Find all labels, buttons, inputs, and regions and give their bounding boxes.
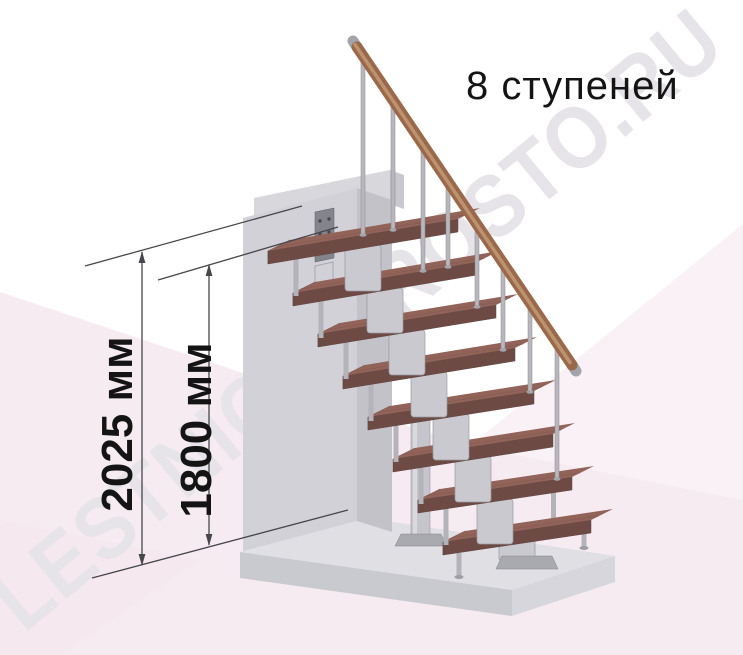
steps-count-label: 8 ступеней bbox=[466, 64, 679, 108]
baluster bbox=[361, 56, 365, 235]
baluster-foot bbox=[420, 269, 427, 273]
staircase-diagram: LESTNICA-PROSTO.RU bbox=[0, 0, 743, 655]
rear-post bbox=[419, 466, 424, 504]
plate-hole bbox=[327, 217, 330, 220]
column-highlight bbox=[413, 420, 417, 538]
baluster-foot bbox=[360, 233, 367, 237]
baluster bbox=[555, 343, 559, 479]
column-base-plate bbox=[496, 556, 558, 569]
module bbox=[345, 245, 381, 291]
leg bbox=[551, 492, 556, 522]
column-base-plate bbox=[395, 534, 447, 546]
baluster-foot bbox=[474, 305, 481, 309]
baluster-foot bbox=[445, 265, 452, 269]
plate-hole bbox=[327, 230, 330, 233]
rear-post bbox=[369, 383, 374, 421]
leg-foot bbox=[455, 575, 464, 579]
baluster bbox=[421, 145, 425, 271]
module bbox=[367, 288, 403, 333]
plate-hole bbox=[318, 219, 321, 222]
module bbox=[455, 456, 491, 502]
baluster-foot bbox=[500, 348, 507, 352]
dimension-label-2025: 2025 мм bbox=[93, 336, 142, 511]
baluster-foot bbox=[554, 477, 561, 481]
module bbox=[389, 330, 425, 375]
module bbox=[433, 414, 469, 460]
rear-post bbox=[444, 507, 449, 545]
rear-post bbox=[344, 341, 349, 379]
leg bbox=[582, 533, 587, 547]
rear-post bbox=[394, 424, 399, 462]
module bbox=[477, 499, 513, 544]
diagram-svg: LESTNICA-PROSTO.RU bbox=[0, 0, 743, 655]
baluster bbox=[501, 263, 505, 350]
dimension-label-1800: 1800 мм bbox=[172, 342, 221, 517]
baluster bbox=[446, 182, 450, 267]
baluster-foot bbox=[390, 228, 397, 232]
leg-foot bbox=[580, 546, 589, 550]
baluster bbox=[391, 101, 395, 230]
baluster bbox=[475, 225, 479, 307]
baluster bbox=[528, 303, 532, 392]
baluster-foot bbox=[527, 390, 534, 394]
rear-post bbox=[319, 300, 324, 338]
leg bbox=[457, 553, 462, 576]
module bbox=[411, 372, 447, 417]
rear-post bbox=[294, 258, 299, 296]
